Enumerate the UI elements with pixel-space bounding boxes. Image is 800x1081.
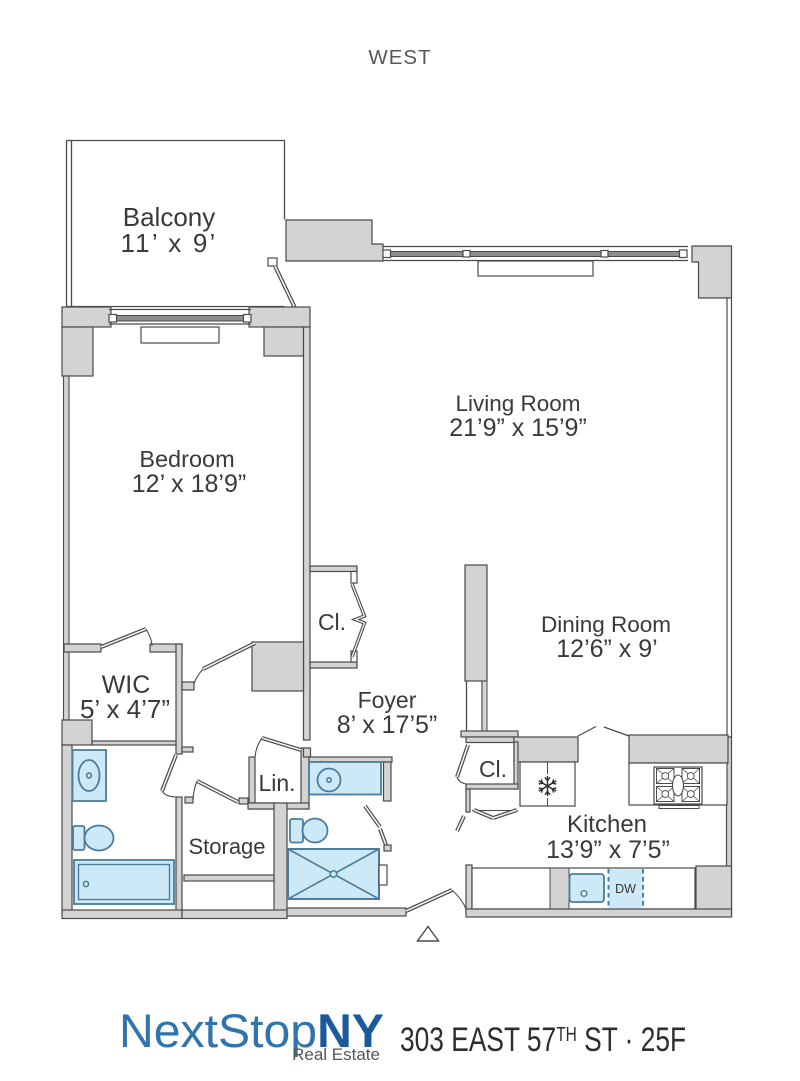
svg-text:12’ x 18’9”: 12’ x 18’9” xyxy=(132,470,246,498)
svg-text:Foyer: Foyer xyxy=(358,687,417,713)
svg-text:Cl.: Cl. xyxy=(318,609,346,635)
svg-text:Real Estate: Real Estate xyxy=(292,1045,380,1064)
svg-text:WEST: WEST xyxy=(368,46,431,69)
svg-text:5’ x 4’7”: 5’ x 4’7” xyxy=(80,694,170,724)
svg-text:DW: DW xyxy=(615,882,636,896)
svg-text:12’6” x 9’: 12’6” x 9’ xyxy=(556,635,657,663)
svg-text:Storage: Storage xyxy=(188,834,265,859)
svg-text:Lin.: Lin. xyxy=(258,770,295,796)
svg-text:Bedroom: Bedroom xyxy=(139,446,234,472)
svg-text:Kitchen: Kitchen xyxy=(567,811,647,838)
svg-text:8’ x 17’5”: 8’ x 17’5” xyxy=(337,711,438,739)
svg-text:21’9” x 15’9”: 21’9” x 15’9” xyxy=(449,414,587,442)
svg-text:11’ x 9’: 11’ x 9’ xyxy=(120,228,217,258)
svg-text:Living Room: Living Room xyxy=(455,391,580,416)
svg-text:Dining Room: Dining Room xyxy=(541,612,671,637)
svg-text:Cl.: Cl. xyxy=(479,756,507,782)
svg-text:303 EAST 57TH ST · 25F: 303 EAST 57TH ST · 25F xyxy=(400,1021,686,1059)
svg-text:13’9” x 7’5”: 13’9” x 7’5” xyxy=(546,836,670,864)
